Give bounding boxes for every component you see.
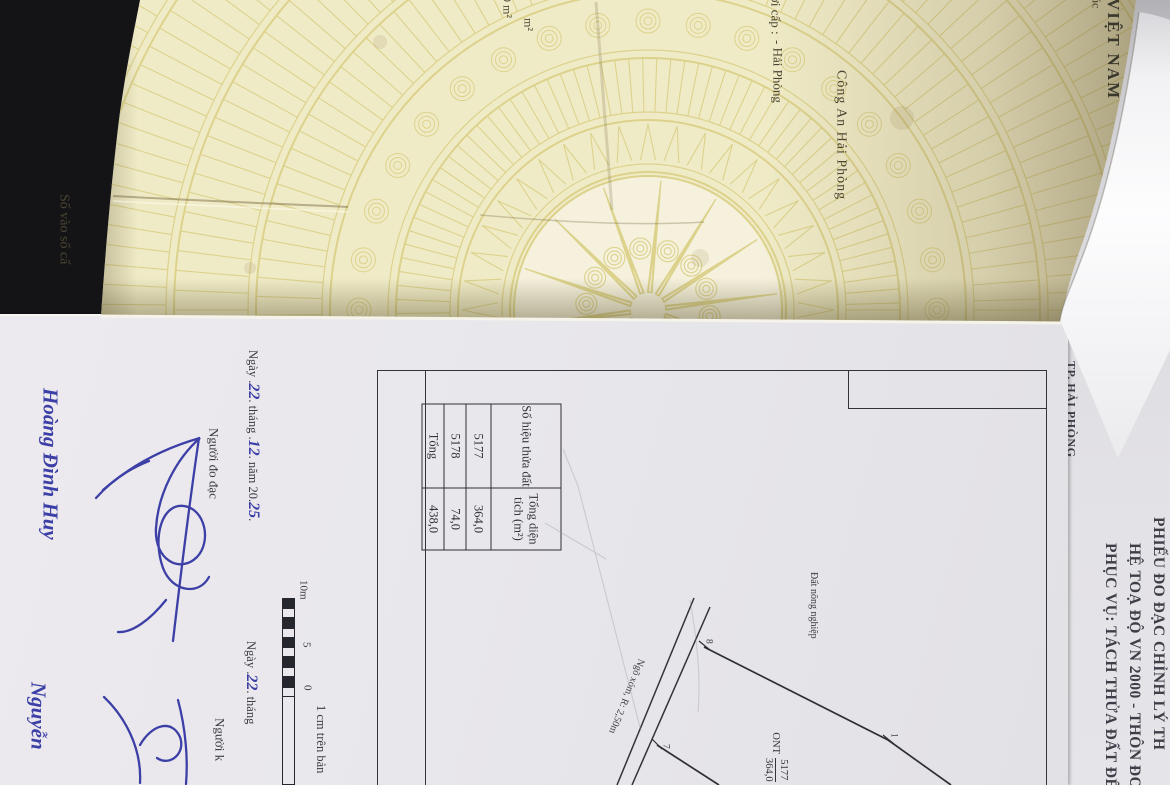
title-line-3: PHỤC VỤ: TÁCH THỬA ĐẤT ĐỂ CHUY [1098, 515, 1122, 785]
title-line-1: PHIẾU ĐO ĐẠC CHỈNH LÝ TH [1146, 515, 1170, 785]
scale-label-0: 0 [301, 685, 313, 691]
table-cell-parcel-1-area: 364,0 [466, 488, 491, 550]
parcel-area: 364,0 [762, 758, 776, 782]
vertex-label-1: 1 [888, 733, 899, 738]
checker-date-line: Ngày .22. tháng [242, 641, 260, 724]
land-use-label: Đất nông nghiệp [808, 572, 819, 639]
date-suffix: . [246, 518, 260, 521]
parcel-annotation: ONT 5177 364,0 [761, 726, 791, 785]
parcel-number: 5177 [778, 759, 789, 780]
document-title-block: PHIẾU ĐO ĐẠC CHỈNH LÝ TH HỆ TOẠ ĐỘ VN 20… [1093, 515, 1170, 785]
scale-note: 1 cm trên bản [314, 705, 328, 773]
checker-date-mid: . tháng [244, 690, 258, 724]
scale-label-10m: 10m [297, 580, 309, 600]
table-cell-parcel-2-area: 74,0 [444, 488, 466, 550]
handwritten-year: 25 [245, 502, 262, 518]
title-line-2: HỆ TOẠ ĐỘ VN 2000 - THÔN ĐOA [1122, 515, 1146, 785]
checker-role-label: Người k [212, 718, 227, 761]
curled-page-corner [0, 0, 1170, 470]
parcel-number-area-fraction: 5177 364,0 [762, 758, 789, 782]
table-header-area: Tổng diện tích (m²) [491, 488, 561, 550]
parcel-code: ONT [771, 732, 782, 754]
checker-date-prefix: Ngày . [244, 641, 258, 674]
table-cell-total-area: 438,0 [422, 488, 444, 550]
checker-handwritten-day: 22 [243, 674, 260, 690]
map-scale-bar [282, 598, 295, 785]
scale-label-5: 5 [300, 642, 312, 648]
vertex-label-8: 8 [703, 639, 714, 644]
checker-handwritten-name: Nguyễn [26, 682, 50, 750]
vertex-label-7: 7 [660, 744, 671, 749]
page-curl-shape [1060, 12, 1170, 458]
photo-of-land-documents: TP. HẢI PHÒNG PHIẾU ĐO ĐẠC CHỈNH LÝ TH H… [0, 0, 1170, 785]
